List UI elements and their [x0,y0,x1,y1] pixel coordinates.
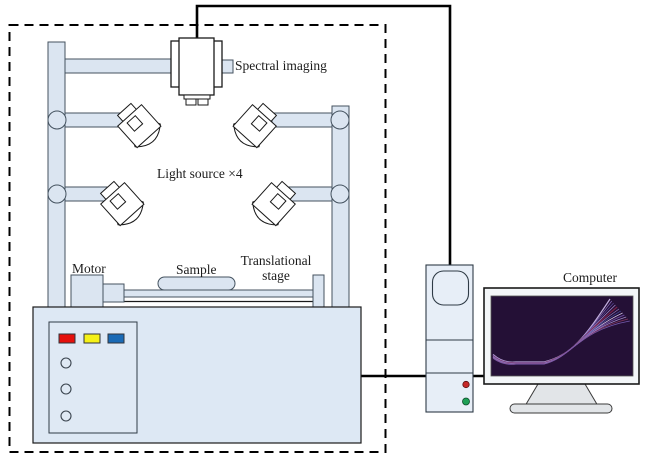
red-button[interactable] [59,334,75,343]
joint-top-left [48,111,66,129]
camera-lens-element-2 [198,99,208,105]
monitor [484,288,639,413]
panel-knob-2[interactable] [61,384,71,394]
sample-label: Sample [176,262,217,277]
left-post [48,42,65,312]
panel-knob-3[interactable] [61,411,71,421]
camera-lens-element-1 [186,99,196,105]
blue-button[interactable] [108,334,124,343]
motor-label: Motor [72,261,106,276]
computer-label: Computer [563,270,617,285]
camera-lens-barrel [184,95,210,99]
stage-rail [124,290,315,297]
translational-stage-label: Translational stage [237,253,315,283]
panel-knob-1[interactable] [61,358,71,368]
control-unit [33,307,361,443]
right-post [332,106,349,312]
tower-power-led-red [463,381,469,387]
light-source-icon-1 [112,98,166,153]
sample-holder [158,277,235,290]
monitor-stand-base [510,404,612,413]
motor-shaft [103,284,124,302]
motor-body [71,275,103,309]
camera-to-tower-cable [197,6,450,268]
light-source-icon-2 [228,98,282,153]
monitor-stand-neck [525,384,598,406]
computer-tower [426,265,473,412]
camera-body [179,38,214,95]
tower-drive-bay [433,271,469,305]
diagram-canvas: Spectral imaging Light source ×4 Motor S… [0,0,647,465]
light-source-label: Light source ×4 [157,166,243,181]
light-source-icon-3 [95,176,149,231]
camera-rail [60,59,172,73]
yellow-button[interactable] [84,334,100,343]
spectral-camera [171,38,222,105]
light-source-icons [95,98,302,231]
camera-rail-stub [221,60,233,73]
tower-power-led-green [463,398,470,405]
joint-bottom-right [331,185,349,203]
joint-bottom-left [48,185,66,203]
light-source-icon-4 [247,176,301,231]
spectral-imaging-label: Spectral imaging [235,58,327,73]
joint-top-right [331,111,349,129]
